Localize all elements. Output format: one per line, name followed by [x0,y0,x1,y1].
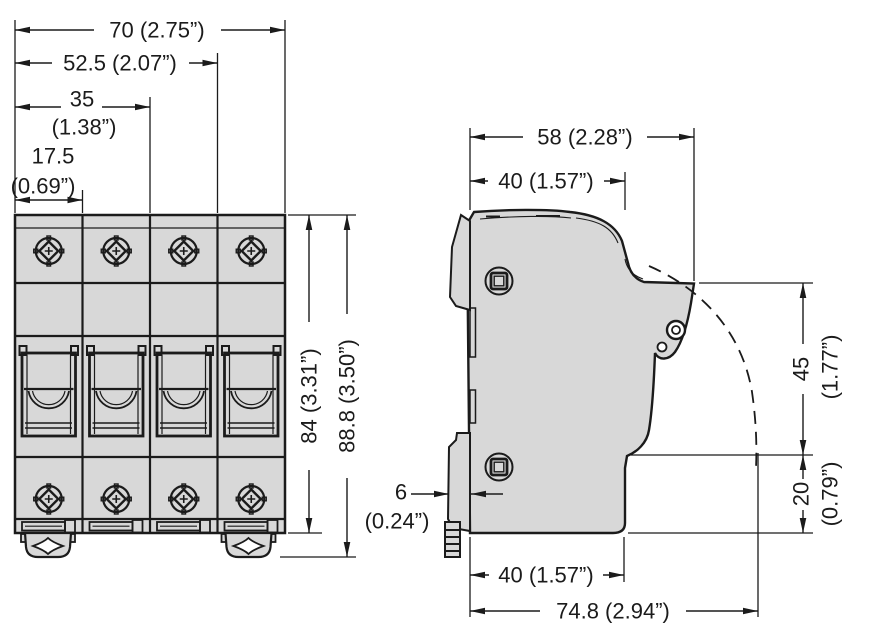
din-hook-upper [450,215,470,310]
side-view-body [445,210,756,557]
dim-label-inches: (1.77”) [818,335,843,400]
side-view: 58 (2.28”) 40 (1.57”) 6 (0.24”) 45 (1.77… [365,125,843,624]
front-view: 70 (2.75”) 52.5 (2.07”) 35 (1.38”) 17.5 … [11,18,360,558]
front-view-body [15,215,285,557]
dim-label: 52.5 (2.07”) [63,51,177,76]
dim-label-inches: (1.38”) [52,115,117,140]
din-hook-lower [448,433,470,531]
dim-label: 74.8 (2.94”) [556,599,670,624]
dim-label: 35 [70,87,94,112]
dim-label: 20 [789,482,814,506]
dim-label: 70 (2.75”) [109,18,204,43]
dim-front-width-1mod: 17.5 (0.69”) [11,144,83,214]
dim-label: 45 [789,357,814,381]
dim-label-inches: (0.24”) [365,509,430,534]
dim-label: 40 (1.57”) [498,563,593,588]
dim-label: 84 (3.31”) [297,348,322,443]
dim-side-height-lower: 20 (0.79”) [628,455,843,533]
dim-label: 6 [395,480,407,505]
side-body-outline [467,210,694,533]
dim-label: 88.8 (3.50”) [335,339,360,453]
din-spring-clip [445,522,460,557]
dim-label: 40 (1.57”) [498,169,593,194]
dim-label: 17.5 [32,144,75,169]
dim-side-depth-top-front: 40 (1.57”) [470,169,625,211]
dim-label-inches: (0.79”) [818,462,843,527]
din-rail-foot-left [21,533,75,557]
dimensional-drawing: 70 (2.75”) 52.5 (2.07”) 35 (1.38”) 17.5 … [0,0,879,642]
dim-label-inches: (0.69”) [11,174,76,199]
dim-label: 58 (2.28”) [537,125,632,150]
drawing-canvas: 70 (2.75”) 52.5 (2.07”) 35 (1.38”) 17.5 … [0,0,879,642]
din-rail-foot-right [222,533,276,557]
